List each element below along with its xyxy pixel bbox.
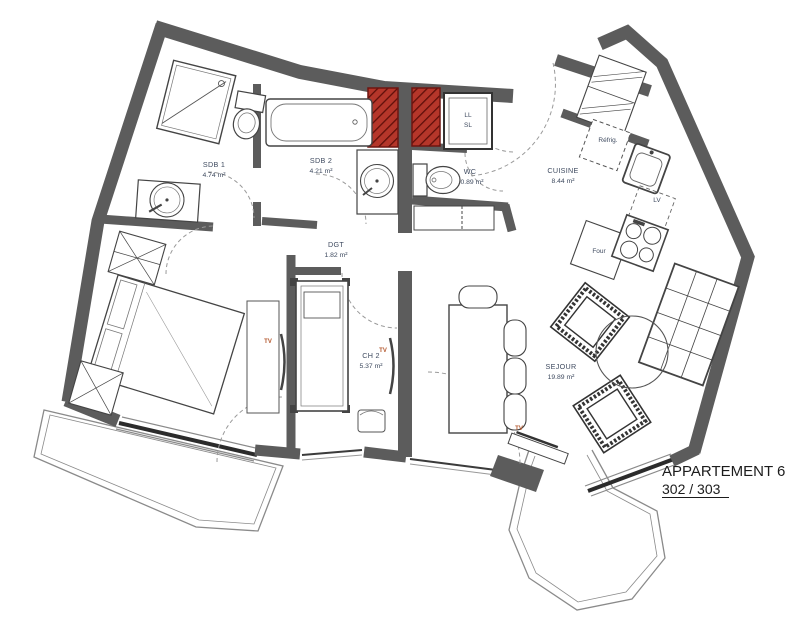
window-ch2	[302, 450, 362, 460]
tv-label-ch2: TV	[379, 348, 387, 354]
bathtub	[266, 99, 372, 146]
room-label-wc-name: WC	[464, 167, 477, 176]
washer-dryer-closet	[444, 93, 492, 149]
apartment-title: APPARTEMENT 6	[662, 463, 785, 480]
vanity-sink-sdb1	[136, 180, 200, 222]
room-label-sdb1-name: SDB 1	[203, 160, 225, 169]
washer-label: LL	[464, 112, 472, 119]
dryer-label: SL	[464, 122, 472, 129]
tv-label-ch1: TV	[264, 339, 272, 345]
toilet-wc	[413, 164, 460, 196]
room-label-ch2-area: 5.37 m²	[359, 363, 383, 370]
dining-table	[449, 305, 507, 433]
room-label-dgt-name: DGT	[328, 240, 344, 249]
oven-label: Four	[592, 248, 606, 255]
room-label-sdb2-name: SDB 2	[310, 156, 332, 165]
room-label-sejour-area: 19.89 m²	[548, 374, 576, 381]
apartment-number: 302 / 303	[662, 481, 721, 497]
title-block: APPARTEMENT 6 302 / 303	[662, 463, 785, 498]
tv-unit-sejour	[508, 431, 569, 464]
dishwasher-label: LV	[653, 197, 661, 204]
room-label-sejour-name: SEJOUR	[546, 362, 577, 371]
room-label-sdb1-area: 4.74 m²	[202, 172, 226, 179]
vanity-sink-sdb2	[357, 150, 398, 214]
single-bed	[290, 278, 350, 413]
room-label-dgt-area: 1.82 m²	[324, 252, 348, 259]
hall-cabinet	[414, 206, 494, 230]
shower	[157, 60, 236, 143]
floor-plan: SDB 1 4.74 m² SDB 2 4.21 m² WC 0.89 m² C…	[0, 0, 800, 627]
fridge-label: Réfrig.	[598, 137, 617, 144]
tv-ch2	[390, 338, 394, 394]
room-label-wc-area: 0.89 m²	[460, 179, 484, 186]
room-label-cuisine-name: CUISINE	[547, 166, 578, 175]
room-label-cuisine-area: 8.44 m²	[551, 178, 575, 185]
stool-ch2	[358, 410, 385, 432]
room-label-sdb2-area: 4.21 m²	[309, 168, 333, 175]
armchair-1	[551, 283, 630, 362]
floor-plan-page: SDB 1 4.74 m² SDB 2 4.21 m² WC 0.89 m² C…	[0, 0, 800, 627]
balcony-left	[34, 410, 283, 531]
tv-unit-ch1	[247, 301, 285, 413]
duct-shaft-right	[412, 88, 440, 146]
kitchen-sink	[622, 143, 671, 194]
room-label-ch2-name: CH 2	[362, 351, 380, 360]
wardrobe-head-top	[108, 231, 166, 285]
window-dining	[410, 459, 496, 475]
window-ch1-sliding	[116, 417, 260, 461]
tv-label-sejour: TV	[515, 426, 523, 432]
